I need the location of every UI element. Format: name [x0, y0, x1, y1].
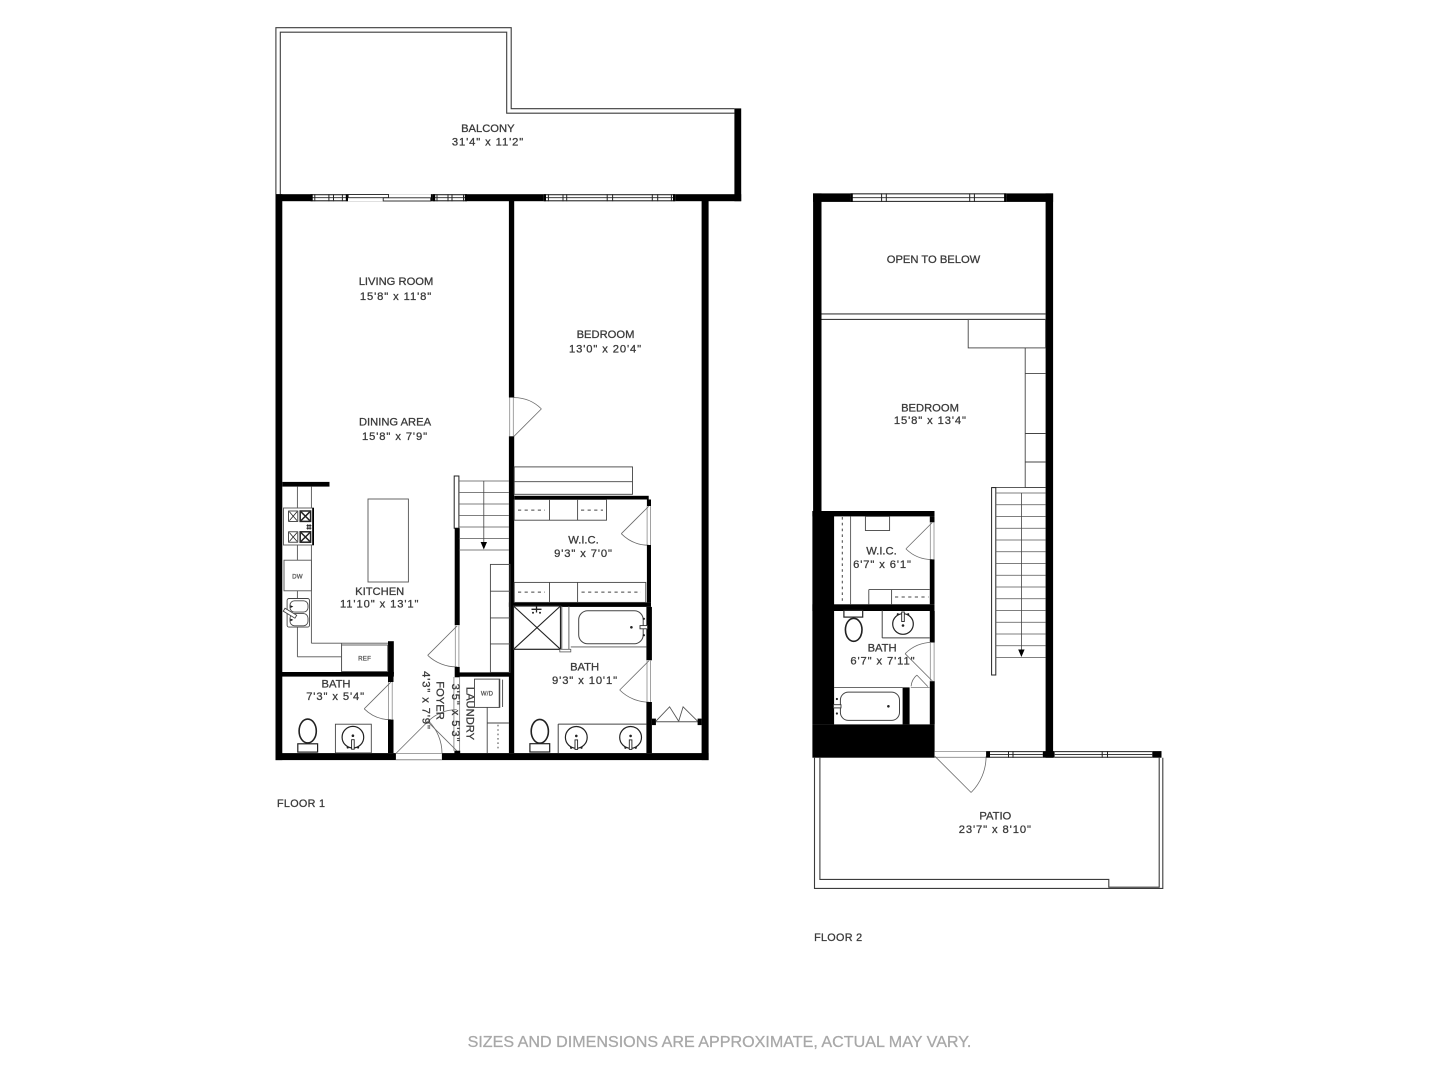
- svg-text:15'8" x 7'9": 15'8" x 7'9": [362, 431, 428, 443]
- svg-text:W.I.C.: W.I.C.: [568, 534, 598, 546]
- svg-text:31'4" x 11'2": 31'4" x 11'2": [452, 137, 524, 149]
- svg-text:9'3" x 7'0": 9'3" x 7'0": [554, 548, 613, 560]
- svg-text:7'3" x 5'4": 7'3" x 5'4": [306, 691, 365, 703]
- svg-text:W/D: W/D: [481, 692, 494, 698]
- svg-text:FOYER: FOYER: [434, 681, 446, 720]
- svg-text:FLOOR 1: FLOOR 1: [277, 798, 325, 810]
- svg-text:3'5" x 5'3": 3'5" x 5'3": [449, 684, 461, 743]
- svg-text:LIVING ROOM: LIVING ROOM: [359, 276, 434, 288]
- svg-text:15'8" x 11'8": 15'8" x 11'8": [360, 291, 432, 303]
- svg-text:4'3" x 7'9": 4'3" x 7'9": [420, 671, 432, 730]
- svg-text:OPEN TO BELOW: OPEN TO BELOW: [887, 254, 981, 266]
- svg-text:11'10" x 13'1": 11'10" x 13'1": [340, 599, 419, 611]
- svg-text:W.I.C.: W.I.C.: [866, 546, 896, 558]
- svg-text:REF: REF: [358, 655, 371, 662]
- svg-text:15'8" x 13'4": 15'8" x 13'4": [894, 415, 967, 427]
- svg-text:DW: DW: [292, 574, 303, 581]
- svg-text:KITCHEN: KITCHEN: [355, 586, 404, 598]
- svg-text:BATH: BATH: [321, 679, 350, 691]
- svg-text:23'7" x 8'10": 23'7" x 8'10": [959, 824, 1032, 836]
- svg-text:SIZES AND DIMENSIONS ARE APPRO: SIZES AND DIMENSIONS ARE APPROXIMATE, AC…: [468, 1033, 972, 1051]
- svg-text:BATH: BATH: [868, 643, 897, 655]
- svg-text:LAUNDRY: LAUNDRY: [464, 687, 476, 741]
- svg-text:DINING AREA: DINING AREA: [359, 417, 432, 429]
- svg-text:BEDROOM: BEDROOM: [577, 329, 635, 341]
- svg-text:13'0" x 20'4": 13'0" x 20'4": [569, 343, 642, 355]
- svg-text:BALCONY: BALCONY: [461, 123, 515, 135]
- svg-text:6'7" x 6'1": 6'7" x 6'1": [853, 559, 912, 571]
- svg-text:PATIO: PATIO: [979, 811, 1011, 823]
- svg-text:FLOOR 2: FLOOR 2: [814, 932, 862, 944]
- svg-text:BATH: BATH: [570, 662, 599, 674]
- svg-text:6'7" x 7'11": 6'7" x 7'11": [850, 655, 915, 667]
- svg-text:9'3" x 10'1": 9'3" x 10'1": [552, 675, 618, 687]
- svg-text:BEDROOM: BEDROOM: [901, 402, 959, 414]
